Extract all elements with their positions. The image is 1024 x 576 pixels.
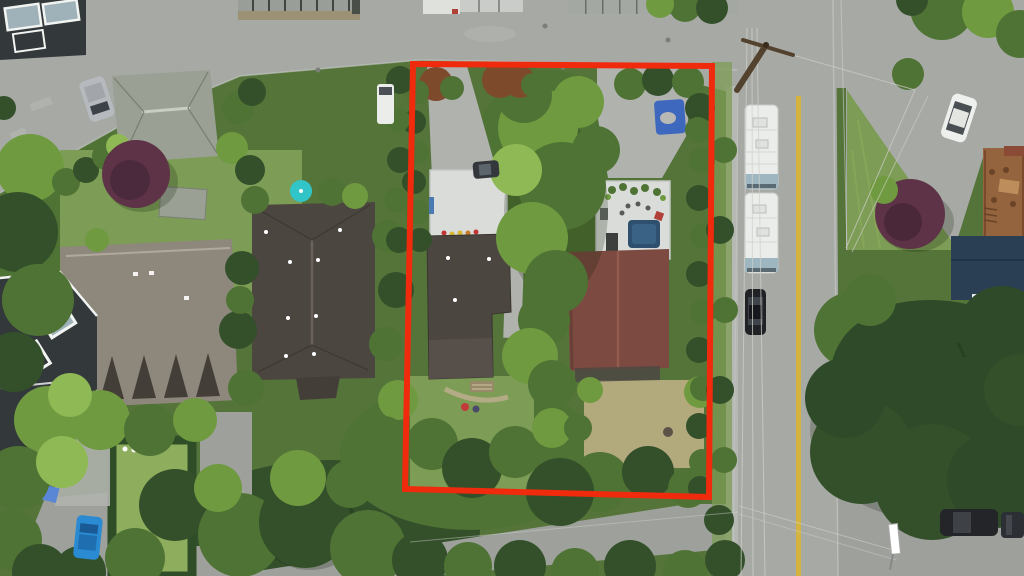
main-road <box>733 0 840 576</box>
deck-car <box>472 160 499 179</box>
blue-car <box>73 515 103 560</box>
parked-car-dark-2 <box>1001 512 1024 538</box>
play-figure-dark <box>473 406 480 413</box>
road-center-line <box>796 96 801 576</box>
top-roof-row-1 <box>238 0 358 11</box>
play-figure-red <box>461 403 469 411</box>
black-car <box>745 289 766 335</box>
parked-car-dark-1 <box>940 509 998 536</box>
white-truck <box>423 0 460 14</box>
white-rv-2 <box>745 193 778 273</box>
aerial-photo <box>0 0 1024 576</box>
white-rv-1 <box>745 105 778 189</box>
white-van <box>377 84 394 124</box>
